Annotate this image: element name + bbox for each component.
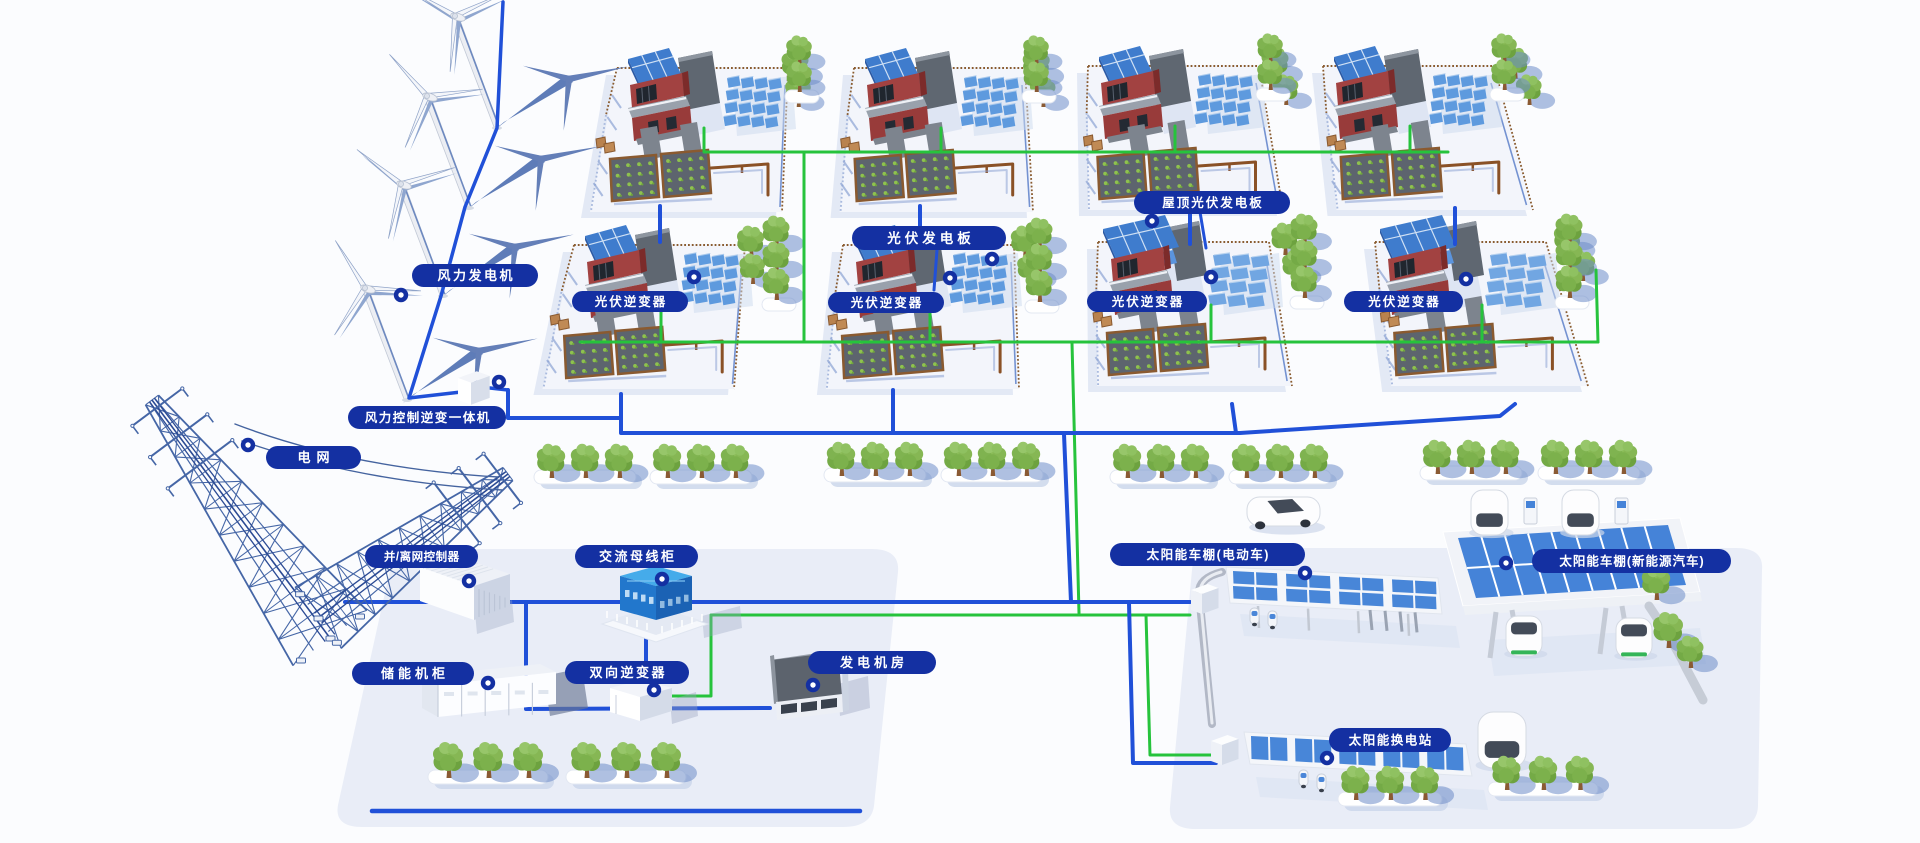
svg-text:双向逆变器: 双向逆变器 — [589, 665, 667, 680]
svg-text:电网: 电网 — [297, 450, 335, 465]
svg-text:风力发电机: 风力发电机 — [437, 268, 515, 283]
svg-text:储能机柜: 储能机柜 — [380, 666, 449, 681]
svg-text:风力控制逆变一体机: 风力控制逆变一体机 — [365, 410, 491, 425]
svg-text:光伏逆变器: 光伏逆变器 — [594, 294, 668, 309]
svg-text:太阳能车棚(电动车): 太阳能车棚(电动车) — [1147, 547, 1270, 562]
svg-text:并/离网控制器: 并/离网控制器 — [384, 550, 460, 564]
svg-text:光伏逆变器: 光伏逆变器 — [1367, 294, 1441, 309]
svg-text:屋顶光伏发电板: 屋顶光伏发电板 — [1162, 195, 1264, 210]
svg-text:太阳能车棚(新能源汽车): 太阳能车棚(新能源汽车) — [1559, 554, 1704, 569]
svg-text:光伏逆变器: 光伏逆变器 — [850, 295, 924, 310]
svg-text:交流母线柜: 交流母线柜 — [599, 549, 677, 564]
svg-text:发电机房: 发电机房 — [839, 655, 908, 670]
svg-text:太阳能换电站: 太阳能换电站 — [1349, 733, 1433, 748]
svg-text:光伏逆变器: 光伏逆变器 — [1111, 294, 1185, 309]
svg-text:光伏发电板: 光伏发电板 — [886, 230, 975, 246]
